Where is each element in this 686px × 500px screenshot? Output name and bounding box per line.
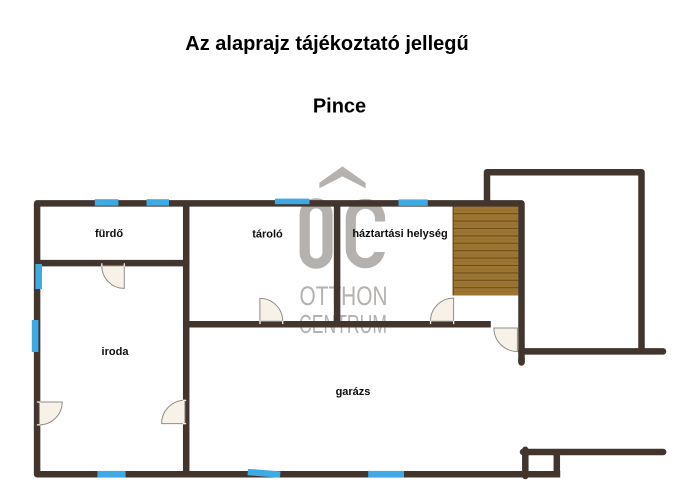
svg-text:iroda: iroda [102,346,130,358]
svg-text:OTTHON: OTTHON [300,281,388,311]
svg-text:garázs: garázs [336,386,371,398]
svg-text:fürdő: fürdő [95,228,123,240]
svg-text:háztartási helység: háztartási helység [352,228,447,240]
svg-text:tároló: tároló [252,228,283,240]
svg-text:Pince: Pince [313,95,366,117]
svg-text:Az alaprajz tájékoztató jelleg: Az alaprajz tájékoztató jellegű [185,33,468,55]
